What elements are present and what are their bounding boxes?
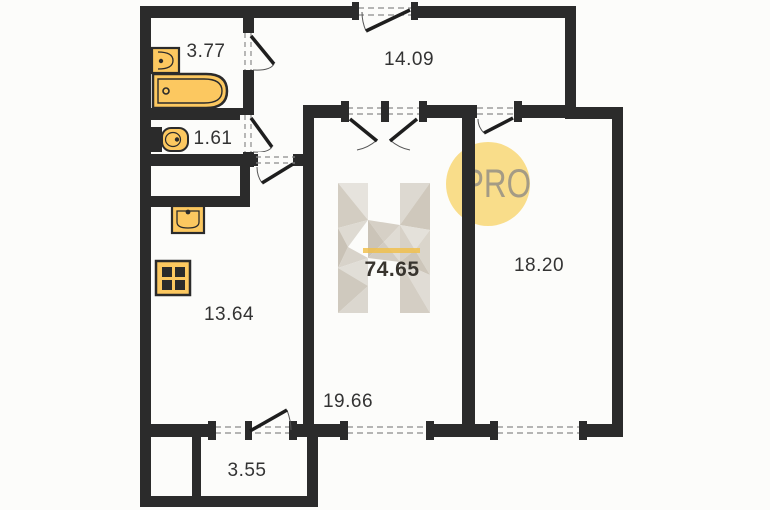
wash-basin-body xyxy=(152,48,179,73)
wall-living-bedroom-divider xyxy=(462,105,475,437)
window-jamb xyxy=(426,421,434,440)
window-bedroom xyxy=(490,421,587,440)
total-area-label: 74.65 xyxy=(364,258,419,282)
window-jamb xyxy=(208,421,216,440)
wash-basin-tap xyxy=(159,59,163,63)
window-jamb xyxy=(411,2,418,20)
floor-plan-drawing: PRO xyxy=(0,0,770,510)
wash-basin xyxy=(152,48,179,73)
window-jamb xyxy=(340,421,348,440)
door-bedroom xyxy=(477,101,522,133)
door-bathroom xyxy=(240,33,274,70)
door-kitchen xyxy=(256,152,295,183)
stove-burner xyxy=(175,267,185,277)
window-gap xyxy=(347,421,427,440)
room-area-label-living-room: 19.66 xyxy=(323,391,373,413)
window-jamb xyxy=(579,421,587,440)
wall-balcony-divider xyxy=(192,435,201,496)
door-jamb xyxy=(419,101,427,122)
wall-living-left xyxy=(303,107,314,437)
door-wc xyxy=(240,115,272,152)
stove xyxy=(156,261,190,295)
door-jamb xyxy=(341,101,349,122)
room-area-label-bedroom: 18.20 xyxy=(514,255,564,277)
pro-badge: PRO xyxy=(446,142,531,226)
toilet xyxy=(148,127,188,152)
wall-hallway-right xyxy=(565,6,576,118)
kitchen-sink xyxy=(172,206,204,233)
window-jamb xyxy=(352,2,359,20)
fixtures xyxy=(148,48,227,295)
room-area-label-kitchen: 13.64 xyxy=(204,304,254,326)
wall-balcony-right xyxy=(307,435,318,507)
door-jamb-center xyxy=(381,101,389,122)
accent-underline xyxy=(363,248,420,253)
window-hallway-top xyxy=(352,2,418,31)
wall-bathroom-bottom xyxy=(140,108,254,120)
wall-balcony-bottom xyxy=(140,496,318,507)
door-arc xyxy=(357,140,377,150)
bathtub xyxy=(153,74,227,108)
stove-burner xyxy=(162,280,172,290)
door-jamb xyxy=(514,101,522,122)
door-arc xyxy=(257,167,262,183)
room-area-label-toilet-room: 1.61 xyxy=(194,128,233,150)
room-area-label-bathroom: 3.77 xyxy=(187,41,226,63)
stove-burner xyxy=(162,267,172,277)
window-kitchen-balcony xyxy=(208,410,297,440)
door-leaf-right xyxy=(390,119,417,141)
door-leaf-left xyxy=(350,119,377,141)
window-living-room xyxy=(340,421,434,440)
door-arc xyxy=(390,140,410,150)
kitchen-sink-tap xyxy=(186,210,191,215)
room-area-label-hallway: 14.09 xyxy=(384,49,434,71)
stove-burner xyxy=(175,280,185,290)
floor-plan-canvas: PRO xyxy=(0,0,770,510)
door-living-room-double xyxy=(341,101,427,150)
window-jamb xyxy=(490,421,498,440)
wall-outer-right xyxy=(612,107,623,437)
h-logo-watermark xyxy=(338,183,430,313)
toilet-tank xyxy=(148,127,162,152)
toilet-drain xyxy=(175,137,179,141)
window-gap xyxy=(497,421,580,440)
room-area-label-balcony: 3.55 xyxy=(228,460,267,482)
